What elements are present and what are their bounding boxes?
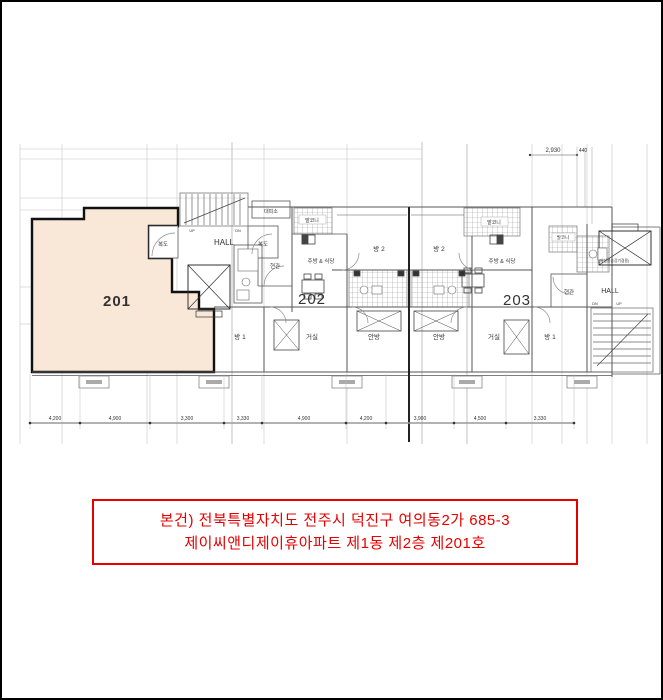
- floor-plan-drawing: 2,930 440: [2, 2, 663, 482]
- label-room2-202: 방 2: [373, 244, 385, 253]
- unit-number-202: 202: [298, 291, 326, 308]
- unit-number-203: 203: [503, 292, 531, 309]
- label-hall-center: HALL: [214, 238, 235, 247]
- label-master-202: 안방: [368, 332, 380, 341]
- label-room1-203: 방 1: [544, 332, 556, 341]
- unit-201-area: [32, 208, 214, 372]
- label-kitchen-203: 주방 & 식당: [489, 257, 516, 265]
- label-up-right: UP: [616, 302, 622, 306]
- dim-bottom-4: 4,900: [298, 416, 311, 422]
- drawing-sheet: 2,930 440: [0, 0, 663, 700]
- dim-top-right-b: 440: [579, 148, 588, 154]
- dim-bottom-7: 4,500: [474, 416, 487, 422]
- label-room1-202: 방 1: [234, 332, 246, 341]
- label-balcony-203: 발코니: [487, 219, 501, 226]
- dim-bottom-0: 4,200: [49, 416, 62, 422]
- label-entrance-203: 현관: [564, 288, 574, 296]
- dim-bottom-5: 4,200: [360, 416, 373, 422]
- subject-property-caption: 본건) 전북특별자치도 전주시 덕진구 여의동2가 685-3 제이씨앤디제이휴…: [92, 499, 578, 565]
- dimension-bottom: 4,200 4,900 3,300 3,330 4,900 4,200 3,90…: [29, 374, 576, 429]
- dim-bottom-2: 3,300: [181, 416, 194, 422]
- dim-bottom-3: 3,330: [237, 416, 250, 422]
- dim-top-right-a: 2,930: [545, 148, 561, 154]
- label-room2-203: 방 2: [433, 244, 445, 253]
- dim-bottom-6: 3,900: [414, 416, 427, 422]
- label-dn-right: DN: [592, 302, 598, 306]
- label-plates: [299, 215, 575, 241]
- label-balcony-small: 발코니: [557, 234, 569, 241]
- label-up: UP: [189, 229, 195, 233]
- label-master-203: 안방: [433, 332, 445, 341]
- label-living-202: 거실: [306, 332, 318, 341]
- label-balcony-202: 발코니: [305, 217, 319, 224]
- dim-bottom-8: 3,330: [534, 416, 547, 422]
- label-corridor-right: 복도: [258, 241, 268, 248]
- label-living-203: 거실: [488, 332, 500, 341]
- label-kitchen-202: 주방 & 식당: [308, 257, 335, 265]
- caption-line-1: 본건) 전북특별자치도 전주시 덕진구 여의동2가 685-3: [160, 509, 510, 532]
- label-entrance-202: 현관: [270, 262, 280, 270]
- outdoor-unit-boxes: [79, 376, 597, 388]
- dimension-top-right: 2,930 440: [529, 147, 592, 224]
- bath-201-fixtures: [237, 249, 258, 300]
- unit-number-201: 201: [103, 293, 131, 310]
- stairs-right: [591, 308, 653, 372]
- dim-bottom-1: 4,900: [109, 416, 122, 422]
- label-dn: DN: [235, 229, 241, 233]
- label-corridor-left: 복도: [158, 241, 168, 248]
- label-shelter: 대피소: [264, 208, 278, 215]
- caption-line-2: 제이씨앤디제이휴아파트 제1동 제2층 제201호: [184, 532, 485, 555]
- label-hall-right: HALL: [601, 288, 619, 295]
- label-elevator-note: (비상용승강기겸용): [599, 258, 630, 263]
